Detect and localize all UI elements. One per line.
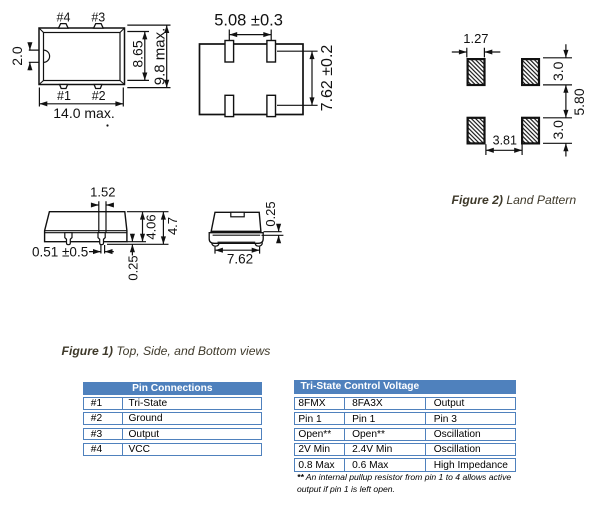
svg-text:14.0 max.: 14.0 max.	[53, 105, 114, 121]
svg-text:8.65: 8.65	[129, 40, 145, 67]
svg-text:7.62: 7.62	[227, 251, 253, 266]
svg-text:#2: #2	[92, 89, 106, 103]
svg-text:0.25: 0.25	[125, 255, 140, 280]
svg-text:5.80: 5.80	[571, 88, 587, 115]
svg-text:7.62 ±0.2: 7.62 ±0.2	[319, 45, 336, 112]
svg-text:4.06: 4.06	[144, 214, 159, 239]
svg-text:0.51 ±0.5: 0.51 ±0.5	[32, 245, 88, 260]
svg-text:2.0: 2.0	[9, 46, 25, 66]
svg-text:3.0: 3.0	[550, 61, 566, 81]
svg-text:1.27: 1.27	[463, 31, 488, 46]
svg-text:3.81: 3.81	[493, 133, 517, 147]
svg-text:0.25: 0.25	[263, 201, 278, 226]
svg-text:#1: #1	[57, 89, 71, 103]
svg-text:#3: #3	[91, 11, 105, 25]
svg-text:#4: #4	[57, 11, 71, 25]
svg-text:9.8 max.: 9.8 max.	[151, 28, 168, 86]
svg-text:4.7: 4.7	[165, 217, 180, 235]
svg-text:1.52: 1.52	[90, 184, 115, 199]
svg-text:5.08 ±0.3: 5.08 ±0.3	[214, 12, 283, 30]
svg-text:3.0: 3.0	[550, 120, 566, 140]
